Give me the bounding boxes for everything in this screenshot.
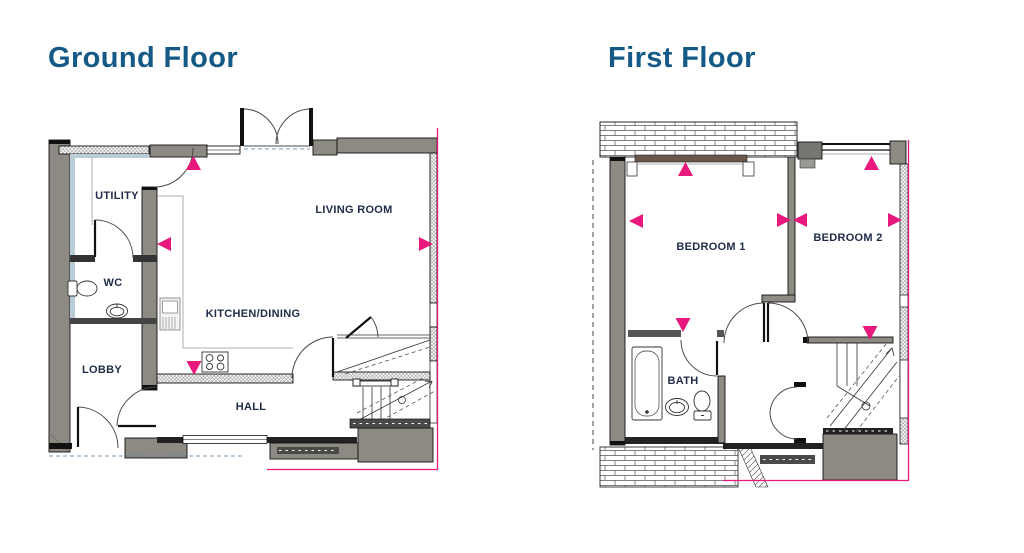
ff-interior-walls — [628, 157, 893, 443]
hob-icon — [202, 352, 228, 372]
ff-roof-brick-bottom — [600, 447, 738, 487]
gf-markers — [157, 156, 433, 375]
ff-partition-bedrooms — [788, 157, 795, 297]
ground-floor-title: Ground Floor — [48, 42, 238, 75]
first-floor-plan — [590, 110, 920, 490]
ff-doors — [681, 303, 808, 443]
ff-window-band-landing — [760, 455, 815, 464]
ff-door-bath — [681, 340, 717, 376]
floorplan-page: { "colors": { "title_blue": "#155987", "… — [0, 0, 1024, 553]
pink-marker-up-icon — [864, 156, 879, 170]
room-label-bath: BATH — [668, 375, 699, 387]
pink-marker-down-icon — [187, 361, 202, 375]
gf-french-doors — [240, 108, 313, 149]
gf-door-cupboard — [371, 317, 378, 337]
ff-markers — [629, 156, 902, 340]
ff-cupboard-door-top — [770, 387, 797, 413]
gf-front-door — [78, 407, 118, 448]
ff-roof-brick-top — [600, 122, 797, 157]
first-floor-title: First Floor — [608, 42, 756, 75]
gf-door-kitchen — [292, 337, 333, 378]
room-label-bedroom1: BEDROOM 1 — [676, 241, 745, 253]
gf-stairs — [337, 335, 435, 428]
appliance-icon — [160, 298, 180, 330]
gf-party-wall-hatch-top — [59, 146, 149, 154]
toilet-icon — [694, 391, 711, 420]
ff-bath-east-wall — [718, 376, 725, 443]
pink-marker-up-icon — [186, 156, 201, 170]
toilet-icon — [68, 281, 97, 296]
ff-cupboard-door-bottom — [770, 413, 797, 439]
pink-marker-left-icon — [629, 214, 643, 228]
gf-door-wc — [95, 220, 133, 258]
pink-marker-down-icon — [676, 318, 691, 332]
ff-stairs — [827, 343, 899, 432]
ff-exterior-walls — [593, 141, 908, 487]
pink-marker-left-icon — [157, 237, 171, 251]
ff-door-bedroom1 — [724, 303, 764, 343]
room-label-bedroom2: BEDROOM 2 — [813, 232, 882, 244]
room-label-lobby: LOBBY — [82, 364, 122, 376]
room-label-wc: WC — [104, 277, 123, 289]
bathtub-icon — [632, 347, 662, 420]
room-label-hall: HALL — [236, 401, 267, 413]
room-label-utility: UTILITY — [95, 190, 139, 202]
ff-window-head-bedroom1 — [635, 155, 747, 162]
ff-door-bedroom2 — [768, 303, 808, 343]
ff-chimney-block — [798, 142, 822, 159]
gf-party-wall-right — [430, 153, 437, 303]
basin-icon — [666, 399, 689, 416]
gf-door-lobby — [117, 387, 157, 426]
ff-bath-north-wall — [628, 330, 681, 337]
room-label-kitchen-dining: KITCHEN/DINING — [206, 308, 301, 320]
room-label-living-room: LIVING ROOM — [315, 204, 392, 216]
ff-landing-north-wall — [807, 337, 893, 343]
gf-boundary-lines — [267, 128, 438, 470]
basin-icon — [107, 304, 128, 318]
gf-exterior-walls — [49, 138, 437, 462]
